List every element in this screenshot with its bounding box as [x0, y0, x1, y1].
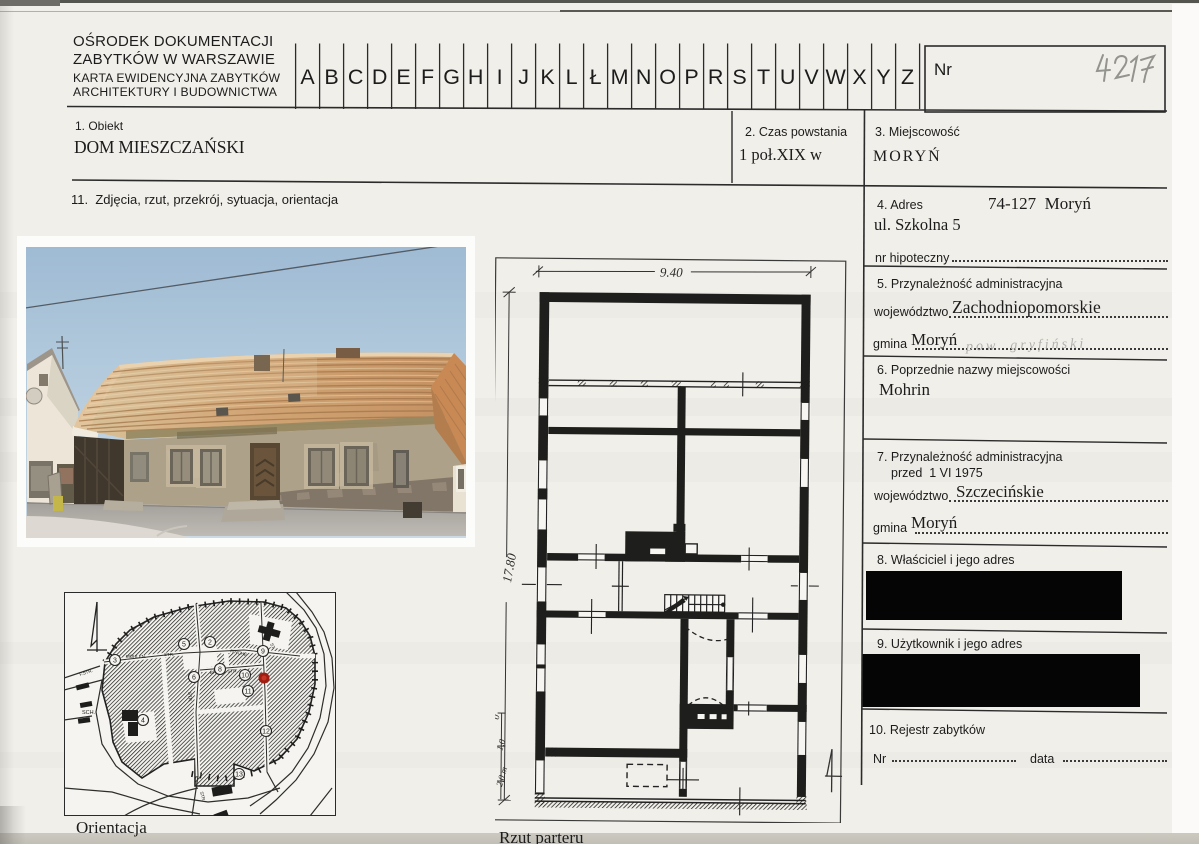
svg-text:17.80: 17.80 [499, 552, 519, 584]
svg-text:8: 8 [218, 667, 222, 674]
svg-text:STR.: STR. [164, 652, 174, 657]
svg-text:9.40: 9.40 [660, 265, 683, 280]
svg-text:2,0 m: 2,0 m [495, 765, 509, 787]
svg-text:3: 3 [113, 658, 117, 665]
svg-text:MÜHLEN.: MÜHLEN. [126, 653, 146, 659]
svg-text:9: 9 [261, 649, 265, 656]
svg-text:STR.: STR. [187, 692, 193, 703]
svg-text:11: 11 [244, 689, 251, 696]
svg-text:12: 12 [262, 729, 270, 736]
svg-text:SCH.: SCH. [82, 710, 96, 716]
svg-text:0: 0 [495, 713, 502, 720]
svg-text:13: 13 [235, 772, 243, 779]
svg-text:2: 2 [208, 640, 212, 647]
svg-text:1,0: 1,0 [495, 738, 507, 752]
svg-text:10: 10 [241, 673, 249, 680]
svg-text:5: 5 [182, 642, 186, 649]
svg-text:4: 4 [141, 718, 145, 725]
svg-text:6: 6 [192, 675, 196, 682]
